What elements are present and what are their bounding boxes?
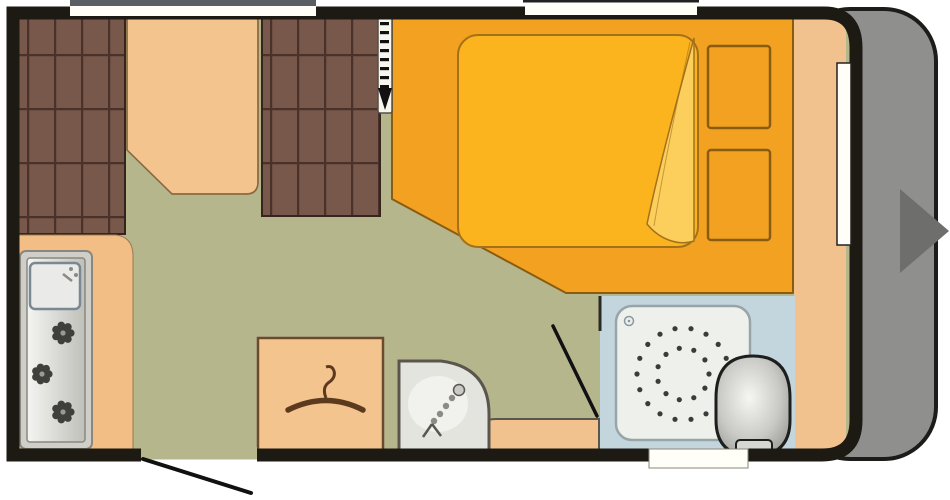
dinette-bench-left [12, 16, 125, 234]
floorplan-svg [0, 0, 950, 500]
window-dinette-frame [70, 0, 316, 6]
caravan-floorplan [0, 0, 950, 500]
window-bathroom [649, 449, 748, 468]
dinette-bench-right [262, 16, 380, 216]
overbed-shelf-bottom [708, 150, 770, 240]
sliding-divider [378, 15, 392, 113]
window-bed-frame [523, 0, 699, 3]
dinette-table [127, 14, 258, 194]
wardrobe [258, 338, 383, 452]
entrance-door-opening [141, 447, 257, 460]
overbed-shelf-top [708, 46, 770, 128]
bathroom-entry-step [478, 419, 599, 453]
window-front-wall [837, 63, 851, 245]
window-bed [525, 2, 697, 15]
